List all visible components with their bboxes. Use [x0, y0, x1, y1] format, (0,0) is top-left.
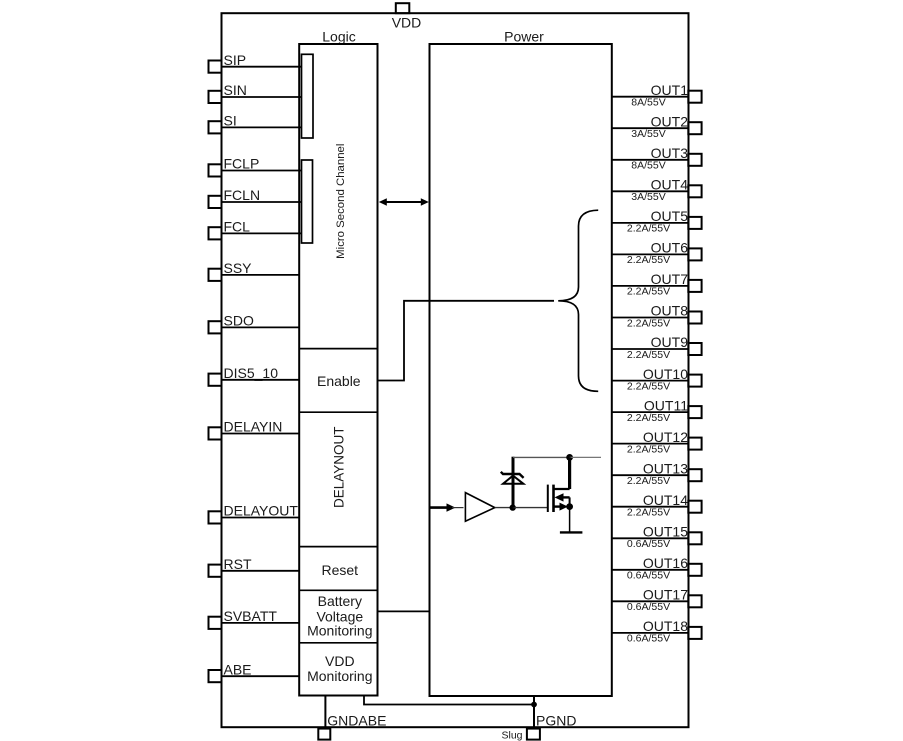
svg-text:PGND: PGND	[536, 712, 576, 728]
svg-text:Logic: Logic	[322, 29, 355, 45]
svg-text:0.6A/55V: 0.6A/55V	[627, 570, 670, 582]
svg-text:RST: RST	[224, 556, 252, 572]
svg-text:2.2A/55V: 2.2A/55V	[627, 507, 670, 519]
svg-text:8A/55V: 8A/55V	[631, 97, 665, 109]
svg-text:Battery: Battery	[318, 593, 362, 609]
svg-text:OUT14: OUT14	[643, 492, 688, 508]
svg-text:2.2A/55V: 2.2A/55V	[627, 443, 670, 455]
svg-text:DELAYNOUT: DELAYNOUT	[331, 427, 346, 509]
svg-text:Reset: Reset	[322, 562, 359, 578]
svg-text:SIN: SIN	[224, 82, 247, 98]
svg-text:GNDABE: GNDABE	[327, 712, 386, 728]
svg-text:SIP: SIP	[224, 52, 247, 68]
svg-text:2.2A/55V: 2.2A/55V	[627, 223, 670, 235]
svg-text:VDD: VDD	[325, 653, 355, 669]
svg-text:Slug: Slug	[502, 729, 523, 741]
svg-text:DELAYOUT: DELAYOUT	[224, 503, 299, 519]
svg-text:FCL: FCL	[224, 219, 251, 235]
svg-text:Power: Power	[504, 29, 544, 45]
svg-text:OUT4: OUT4	[651, 177, 689, 193]
svg-text:Monitoring: Monitoring	[307, 668, 372, 684]
svg-text:3A/55V: 3A/55V	[631, 128, 665, 140]
svg-text:OUT7: OUT7	[651, 271, 689, 287]
svg-text:0.6A/55V: 0.6A/55V	[627, 538, 670, 550]
svg-text:2.2A/55V: 2.2A/55V	[627, 317, 670, 329]
svg-text:ABE: ABE	[224, 661, 252, 677]
svg-text:0.6A/55V: 0.6A/55V	[627, 633, 670, 645]
svg-text:OUT3: OUT3	[651, 145, 689, 161]
svg-text:SVBATT: SVBATT	[224, 608, 278, 624]
svg-text:OUT1: OUT1	[651, 82, 689, 98]
svg-text:VDD: VDD	[392, 15, 422, 31]
svg-text:0.6A/55V: 0.6A/55V	[627, 601, 670, 613]
svg-text:Enable: Enable	[317, 373, 361, 389]
svg-text:OUT15: OUT15	[643, 524, 688, 540]
svg-text:2.2A/55V: 2.2A/55V	[627, 412, 670, 424]
svg-text:OUT11: OUT11	[644, 397, 688, 413]
svg-text:SI: SI	[224, 113, 237, 129]
svg-text:8A/55V: 8A/55V	[631, 160, 665, 172]
svg-text:OUT12: OUT12	[643, 429, 688, 445]
svg-text:OUT10: OUT10	[643, 366, 688, 382]
svg-text:OUT6: OUT6	[651, 240, 689, 256]
svg-text:FCLN: FCLN	[224, 187, 261, 203]
svg-text:OUT2: OUT2	[651, 113, 689, 129]
svg-text:2.2A/55V: 2.2A/55V	[627, 349, 670, 361]
svg-text:OUT17: OUT17	[643, 587, 688, 603]
svg-text:OUT8: OUT8	[651, 303, 689, 319]
svg-text:OUT13: OUT13	[643, 460, 688, 476]
svg-text:OUT5: OUT5	[651, 208, 689, 224]
svg-text:Micro Second Channel: Micro Second Channel	[335, 144, 347, 259]
svg-text:2.2A/55V: 2.2A/55V	[627, 380, 670, 392]
svg-text:Monitoring: Monitoring	[307, 623, 372, 639]
svg-text:SSY: SSY	[224, 260, 253, 276]
svg-text:DELAYIN: DELAYIN	[224, 419, 283, 435]
svg-text:3A/55V: 3A/55V	[631, 191, 665, 203]
svg-text:2.2A/55V: 2.2A/55V	[627, 254, 670, 266]
svg-text:OUT16: OUT16	[643, 555, 688, 571]
svg-text:OUT18: OUT18	[643, 618, 688, 634]
svg-text:OUT9: OUT9	[651, 334, 689, 350]
svg-text:2.2A/55V: 2.2A/55V	[627, 475, 670, 487]
svg-text:2.2A/55V: 2.2A/55V	[627, 286, 670, 298]
svg-text:DIS5_10: DIS5_10	[224, 365, 279, 381]
svg-text:FCLP: FCLP	[224, 156, 260, 172]
svg-text:SDO: SDO	[224, 313, 254, 329]
